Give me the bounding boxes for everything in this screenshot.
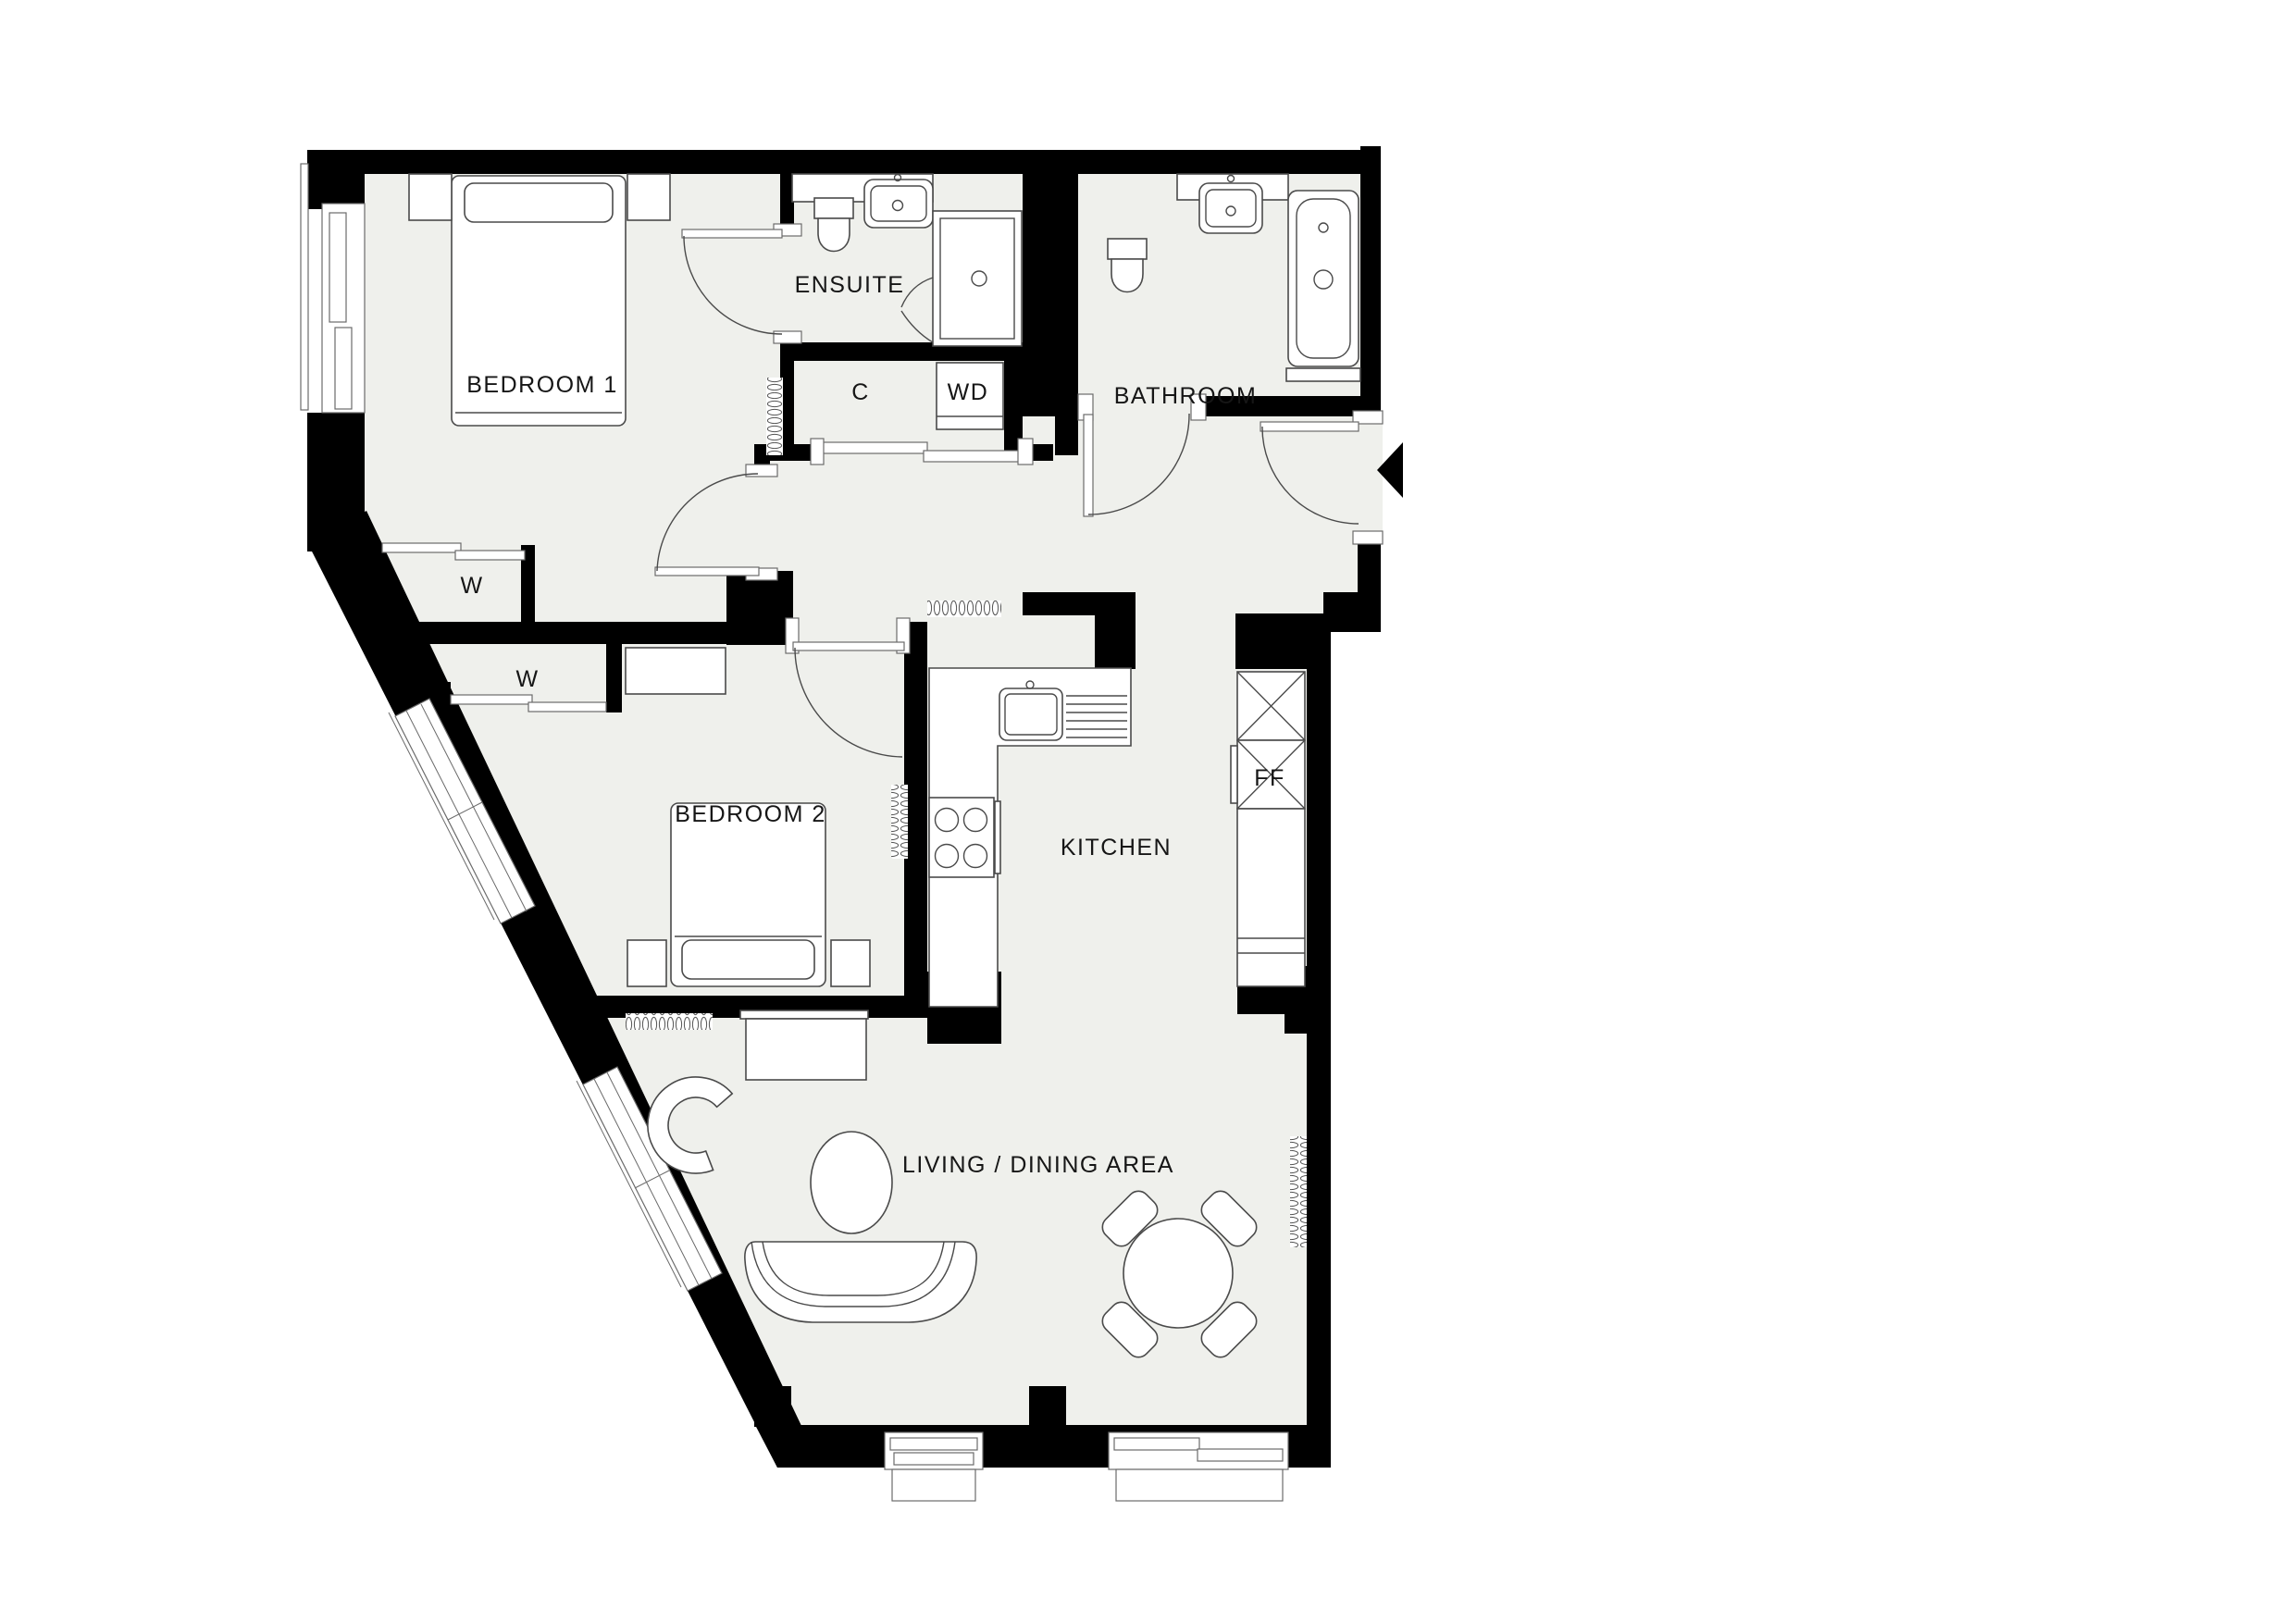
radiator xyxy=(626,1013,713,1030)
dresser xyxy=(626,648,726,694)
window-sash xyxy=(894,1453,974,1465)
wall-bathroom-right xyxy=(1360,146,1381,416)
toilet-bowl xyxy=(1111,259,1143,292)
door-leaf xyxy=(1084,415,1093,516)
window-sash xyxy=(335,328,352,409)
door-jamb xyxy=(746,465,777,477)
room-label-bathroom: BATHROOM xyxy=(1114,383,1258,409)
bed-pillow xyxy=(682,940,814,979)
sliding-door xyxy=(455,551,525,560)
door-jamb xyxy=(1018,439,1033,465)
toilet-cistern xyxy=(814,198,853,218)
door-leaf xyxy=(1260,422,1359,431)
wall-right xyxy=(1307,632,1331,1468)
room-label-washer-dryer: WD xyxy=(948,379,989,405)
wall-kitchen-top-corner xyxy=(1095,613,1136,669)
sliding-door xyxy=(528,702,606,712)
room-label-living-dining: LIVING / DINING AREA xyxy=(902,1152,1174,1178)
room-label-ensuite: ENSUITE xyxy=(795,272,905,298)
kitchen-tall-counter xyxy=(1237,809,1305,986)
wall-wardrobe2-right xyxy=(606,644,622,712)
radiator xyxy=(766,378,783,455)
nightstand xyxy=(409,174,452,220)
tv-screen xyxy=(740,1010,868,1019)
kitchen-sink xyxy=(999,688,1062,740)
window-sash xyxy=(329,213,346,322)
room-label-wardrobe-2: W xyxy=(515,666,539,692)
door-jamb xyxy=(1353,531,1383,544)
toilet-cistern xyxy=(1108,239,1147,259)
room-label-fridge-freezer: FF xyxy=(1254,765,1285,791)
window-apron xyxy=(892,1469,975,1501)
hob-handle xyxy=(995,801,1000,873)
wall-bedroom-divider xyxy=(397,622,793,644)
toilet-bowl xyxy=(818,218,850,252)
radiator xyxy=(927,601,1001,617)
door-leaf xyxy=(682,229,782,238)
window-sash xyxy=(890,1438,977,1450)
nightstand xyxy=(831,940,870,986)
wall-kitchen-bottom-b xyxy=(1237,986,1285,1014)
wall-left-upper xyxy=(307,150,365,209)
window-apron xyxy=(1116,1469,1283,1501)
hob xyxy=(929,798,994,877)
floorplan-page: BEDROOM 1 ENSUITE BATHROOM C WD W W BEDR… xyxy=(0,0,2296,1623)
radiator xyxy=(891,785,908,859)
sliding-door xyxy=(924,451,1025,462)
shower xyxy=(933,211,1022,346)
door-jamb xyxy=(774,331,801,343)
wall-bottom-pillar-2 xyxy=(1029,1386,1066,1427)
fridge-freezer-door xyxy=(1231,746,1237,803)
floorplan-drawing: BEDROOM 1 ENSUITE BATHROOM C WD W W BEDR… xyxy=(0,0,2296,1623)
dining-table xyxy=(1123,1219,1233,1328)
room-label-wardrobe-1: W xyxy=(460,573,483,599)
wall-ensuite-bottom xyxy=(780,342,1078,361)
window-sash xyxy=(1114,1438,1199,1450)
entry-doorway xyxy=(1355,421,1383,532)
room-label-kitchen: KITCHEN xyxy=(1061,835,1172,861)
nightstand xyxy=(627,174,670,220)
window-sill xyxy=(301,164,308,410)
bathtub xyxy=(1288,191,1359,366)
tv-cabinet xyxy=(746,1019,866,1080)
room-label-bedroom-2: BEDROOM 2 xyxy=(675,801,826,827)
nightstand xyxy=(627,940,666,986)
wall-below-ensuite xyxy=(1004,361,1078,387)
radiator xyxy=(1290,1136,1307,1247)
bed-pillow xyxy=(465,183,613,222)
door-leaf xyxy=(655,567,759,576)
room-label-bedroom-1: BEDROOM 1 xyxy=(466,372,618,398)
sliding-door xyxy=(382,543,461,552)
wall-bathroom-left-stub xyxy=(1055,416,1078,455)
window-sash xyxy=(1198,1449,1283,1461)
door-leaf xyxy=(793,642,904,650)
sliding-door xyxy=(819,442,927,453)
wall-right-step xyxy=(1323,592,1381,632)
room-label-cupboard: C xyxy=(851,379,870,405)
wall-ff-top xyxy=(1235,613,1331,669)
wall-bottom-pillar-1 xyxy=(754,1386,791,1427)
wall-hall-bottom-left xyxy=(1023,592,1136,615)
sliding-door xyxy=(451,695,532,704)
coffee-table xyxy=(811,1132,892,1233)
door-jamb xyxy=(811,439,824,465)
bathtub-panel xyxy=(1286,368,1360,381)
wall-top xyxy=(307,150,1381,174)
